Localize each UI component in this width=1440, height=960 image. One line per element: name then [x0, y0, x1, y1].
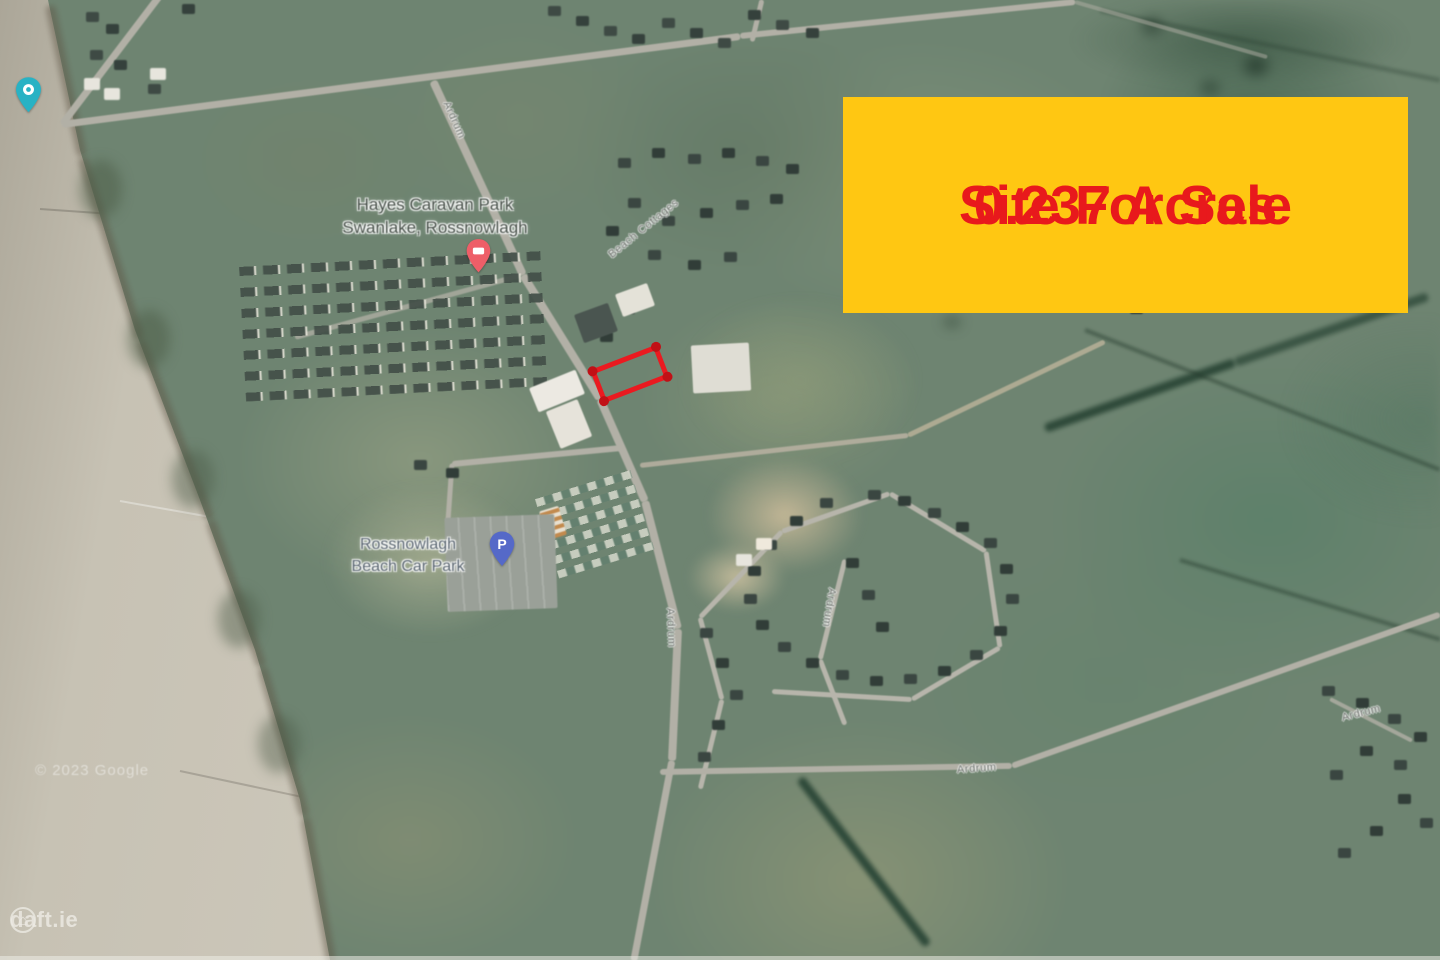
beach-car-park-label-line2: Beach Car Park [333, 556, 483, 578]
beach-car-park-label-line1: Rossnowlagh [333, 534, 483, 556]
white-building [691, 343, 751, 394]
caravan-park-label-line1: Hayes Caravan Park [310, 193, 560, 216]
google-copyright-watermark: © 2023 Google [35, 762, 149, 779]
image-bottom-edge [0, 956, 1440, 960]
white-buildings [0, 0, 16, 12]
sale-banner-acreage: 0.237 Acres [974, 178, 1278, 233]
parking-letter: P [497, 536, 506, 552]
road-name-label: Ardrum [664, 608, 677, 648]
caravan-park-label-line2: Swanlake, Rossnowlagh [310, 216, 560, 239]
caravan-park-lodging-pin-icon [465, 238, 492, 274]
beach-car-park-label: Rossnowlagh Beach Car Park [333, 534, 483, 578]
site-for-sale-map-image: P Hayes Caravan Park Swanlake, Rossnowla… [0, 0, 1440, 960]
sale-banner: Site For Sale 0.237 Acres [843, 97, 1408, 313]
daft-watermark-text: daft.ie [10, 907, 78, 933]
caravan-park-area [238, 244, 547, 402]
beach-attraction-pin-icon [14, 76, 43, 114]
caravan-park-label: Hayes Caravan Park Swanlake, Rossnowlagh [310, 193, 560, 239]
dune-vegetation [80, 160, 122, 218]
parking-pin-icon: P [488, 530, 516, 568]
